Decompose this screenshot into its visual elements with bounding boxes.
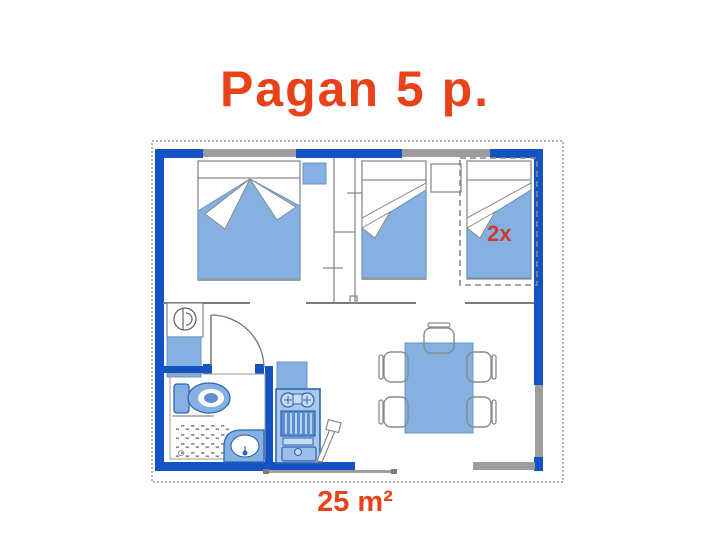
window-icon <box>473 462 535 470</box>
floor-plan: 2x <box>0 0 710 533</box>
entrance-threshold <box>263 470 397 473</box>
dining-table-icon <box>405 343 473 433</box>
window-icon <box>402 149 490 157</box>
window-icon <box>535 385 543 457</box>
washbasin-icon <box>224 430 264 462</box>
double-bed-icon <box>198 161 300 280</box>
area-label: 25 m² <box>0 486 710 519</box>
shower-icon <box>176 424 230 458</box>
nightstand-icon <box>431 164 461 192</box>
single-bed-icon <box>362 161 426 279</box>
window-icon <box>203 149 296 157</box>
technical-closet <box>167 303 203 377</box>
water-heater-icon <box>174 308 196 330</box>
toilet-icon <box>174 383 230 413</box>
floor-plan-page: Pagan 5 p. <box>0 0 710 533</box>
bunk-count-label: 2x <box>487 221 512 246</box>
nightstand-icon <box>303 163 326 184</box>
bunk-bed-icon: 2x <box>460 158 537 285</box>
